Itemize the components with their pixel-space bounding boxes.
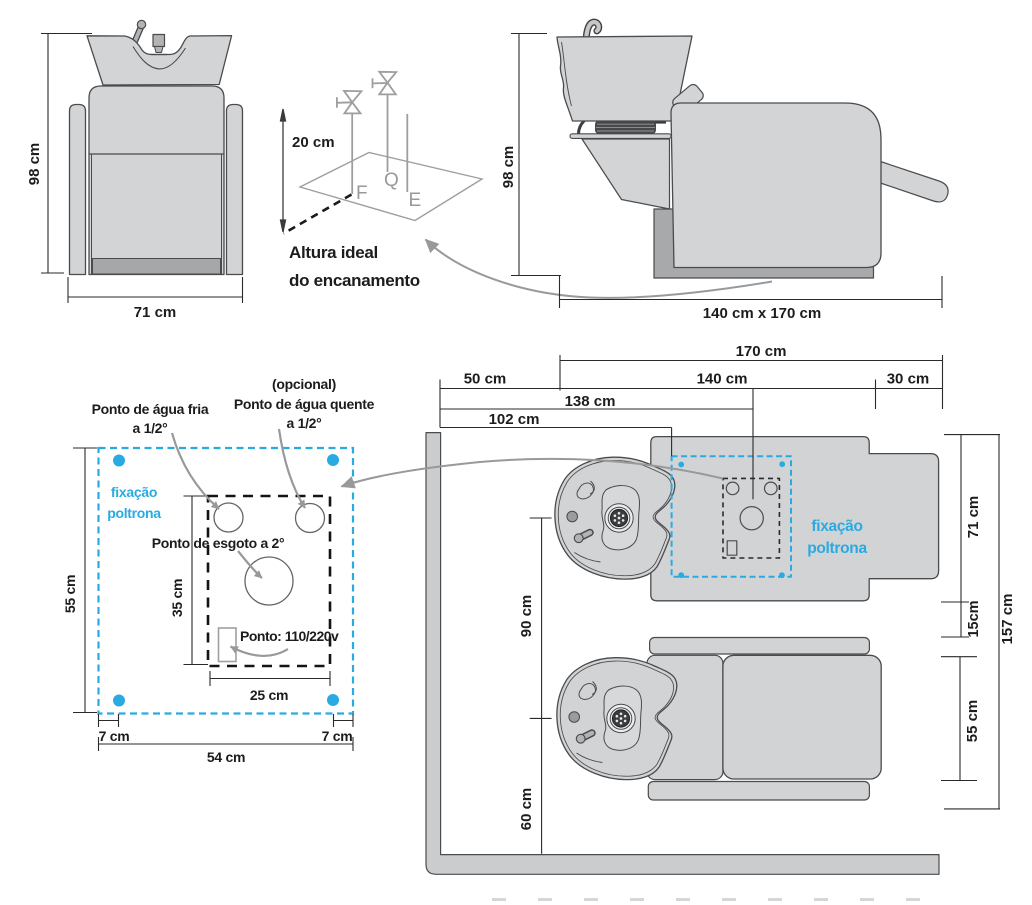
svg-text:55 cm: 55 cm	[62, 575, 78, 613]
svg-text:Ponto de esgoto a 2°: Ponto de esgoto a 2°	[152, 535, 285, 551]
svg-text:poltrona: poltrona	[807, 540, 867, 557]
svg-text:a 1/2°: a 1/2°	[287, 415, 322, 431]
svg-text:Ponto de água fria: Ponto de água fria	[92, 401, 209, 417]
svg-text:71 cm: 71 cm	[134, 304, 177, 321]
svg-text:poltrona: poltrona	[107, 505, 161, 521]
svg-text:Ponto: 110/220v: Ponto: 110/220v	[240, 628, 339, 644]
svg-text:138 cm: 138 cm	[565, 393, 616, 410]
svg-text:90 cm: 90 cm	[518, 595, 535, 638]
svg-text:20 cm: 20 cm	[292, 134, 335, 151]
svg-text:a 1/2°: a 1/2°	[133, 420, 168, 436]
svg-text:7 cm: 7 cm	[99, 728, 130, 744]
svg-text:102 cm: 102 cm	[489, 411, 540, 428]
svg-text:54 cm: 54 cm	[207, 749, 245, 765]
svg-text:140 cm: 140 cm	[697, 371, 748, 388]
svg-text:60 cm: 60 cm	[518, 788, 535, 831]
svg-text:fixação: fixação	[811, 518, 862, 535]
svg-text:50 cm: 50 cm	[464, 371, 507, 388]
svg-text:Altura ideal: Altura ideal	[289, 243, 378, 262]
svg-text:(opcional): (opcional)	[272, 376, 336, 392]
svg-text:140 cm x 170 cm: 140 cm x 170 cm	[703, 305, 821, 322]
svg-text:Ponto de água quente: Ponto de água quente	[234, 396, 375, 412]
svg-text:30 cm: 30 cm	[887, 371, 930, 388]
svg-text:fixação: fixação	[111, 484, 157, 500]
svg-text:25 cm: 25 cm	[250, 687, 288, 703]
svg-text:35 cm: 35 cm	[169, 579, 185, 617]
svg-text:71 cm: 71 cm	[965, 496, 982, 539]
svg-text:170 cm: 170 cm	[736, 343, 787, 360]
svg-text:55 cm: 55 cm	[964, 700, 981, 743]
svg-text:7 cm: 7 cm	[322, 728, 353, 744]
svg-text:F: F	[356, 183, 368, 204]
svg-text:98 cm: 98 cm	[26, 143, 43, 186]
svg-text:E: E	[409, 190, 422, 211]
svg-text:15cm: 15cm	[966, 600, 982, 637]
svg-text:98 cm: 98 cm	[500, 146, 517, 189]
svg-text:Q: Q	[384, 170, 399, 191]
svg-text:do encanamento: do encanamento	[289, 271, 420, 290]
svg-text:157 cm: 157 cm	[999, 594, 1016, 645]
